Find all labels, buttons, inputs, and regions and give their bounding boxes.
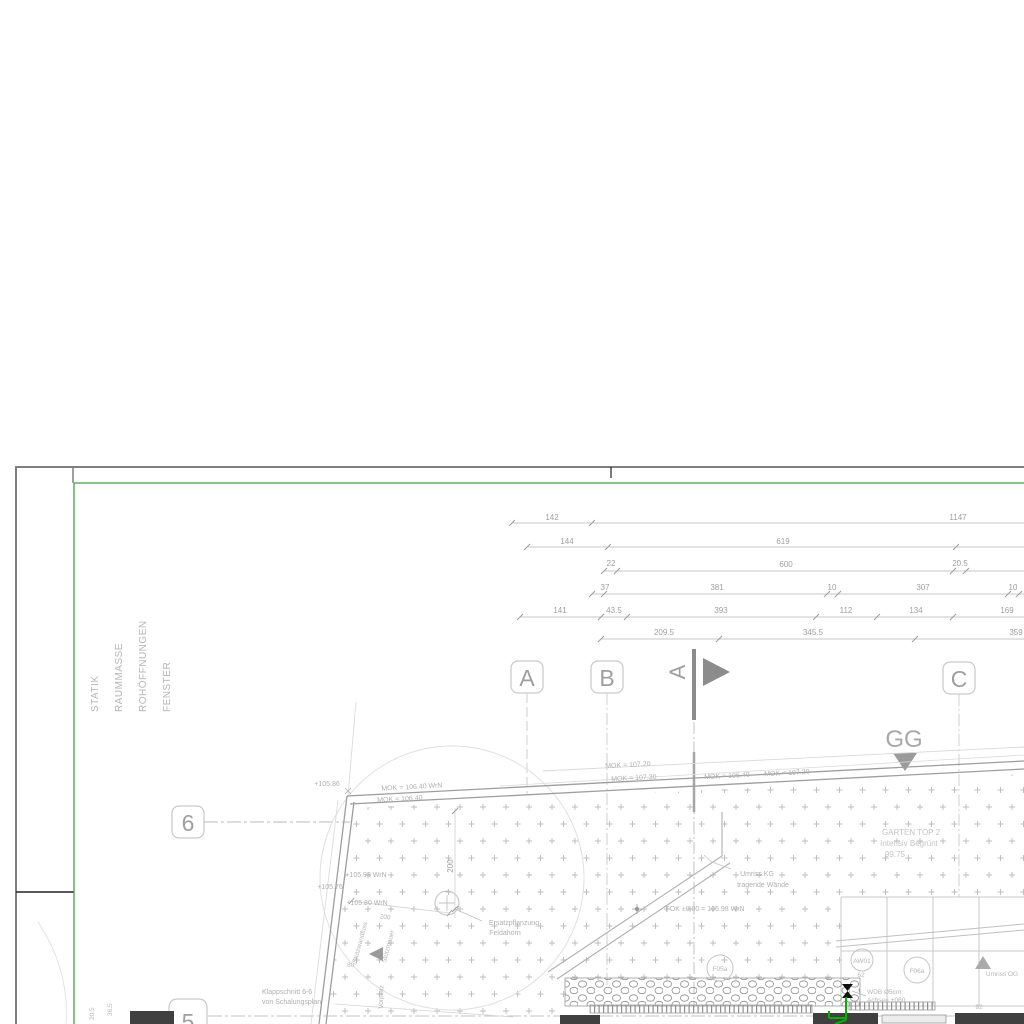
dim-value: 36.5 — [107, 1003, 114, 1016]
cad-drawing-viewport[interactable]: STATIK RAUMMASSE ROHÖFFNUNGEN FENSTER 14… — [0, 0, 1024, 1024]
wall-poche — [130, 1011, 174, 1024]
note-label: WDB Ø5cm — [867, 989, 901, 996]
margin-label-rohoeffnungen: ROHÖFFNUNGEN — [137, 620, 149, 712]
dim-value: 22 — [607, 559, 616, 568]
margin-label-fenster: FENSTER — [162, 662, 173, 712]
room-label: GARTEN TOP 2 — [882, 828, 941, 837]
wall-poche — [955, 1013, 1024, 1024]
dim-value: 345.5 — [803, 628, 824, 637]
level-label: +105.98 WrN — [345, 872, 386, 879]
bubble-aw01: AW01 — [853, 958, 871, 965]
margin-labels: STATIK RAUMMASSE ROHÖFFNUNGEN FENSTER — [90, 620, 173, 712]
dim-value: 141 — [553, 606, 567, 615]
level-label: +105.80 WrN — [346, 900, 387, 907]
margin-label-statik: STATIK — [90, 675, 101, 712]
dim-value: 200 — [379, 913, 391, 921]
umriss-og-triangle-icon — [975, 956, 991, 969]
stripe-band-left — [590, 1005, 812, 1013]
gg-label: GG — [885, 726, 922, 753]
dim-value: 393 — [714, 606, 728, 615]
dim-value: 20.5 — [952, 559, 968, 568]
room-label: Intensiv Begrünt — [880, 839, 939, 848]
bubble-f05a: F05a — [713, 966, 728, 973]
note-label: Achse= +060 — [867, 997, 906, 1004]
dim-value: 1147 — [949, 513, 967, 522]
level-label: +105.86 — [314, 781, 340, 788]
level-label: MOK = 107.20 — [764, 769, 810, 778]
dim-value: 200 — [446, 859, 455, 873]
wall-poche — [560, 1015, 600, 1024]
dim-value: 619 — [776, 537, 790, 546]
level-label: MOK = 106.40 — [704, 772, 750, 781]
grid-letter-a: A — [519, 665, 535, 691]
dim-value: 600 — [779, 560, 793, 569]
dim-value: 359 — [1009, 628, 1023, 637]
section-arrow-icon — [703, 658, 730, 686]
level-label: FOK ±0.00 = 105.98 WrN — [666, 906, 745, 913]
cobble-wall-band — [565, 978, 860, 1006]
dim-value: 37 — [601, 583, 610, 592]
level-label: +105.76 — [317, 884, 343, 891]
dimension-chains: 142 1147 144 619 22 600 20.5 37 381 10 3… — [509, 513, 1024, 642]
level-label: MOK = 107.30 — [611, 774, 657, 783]
dim-value: 144 — [560, 537, 574, 546]
room-area: 99.75 — [885, 850, 906, 859]
note-label: Umriss OG — [986, 971, 1018, 978]
dim-value: 10 — [828, 583, 837, 592]
note-label: Vorplatz — [378, 985, 386, 1009]
note-label: Klappschnitt 6-6 — [262, 989, 312, 996]
grid-number-5: 5 — [182, 1009, 195, 1024]
dim-value: 381 — [710, 583, 724, 592]
dim-value: 92 — [975, 1004, 983, 1011]
dim-value: 112 — [840, 606, 853, 615]
dim-value: 62 — [857, 972, 865, 979]
gg-marker: GG — [885, 726, 922, 771]
dim-value: 43.5 — [606, 606, 622, 615]
note-label: Feldahorn — [489, 930, 521, 937]
margin-label-raummasse: RAUMMASSE — [114, 643, 125, 712]
note-label: Umriss KG — [740, 871, 774, 878]
note-label: tragende Wände — [737, 882, 789, 889]
dim-value: 169 — [1000, 606, 1014, 615]
grid-letter-b: B — [599, 665, 614, 691]
level-label: MOK = 106.40 — [377, 795, 423, 804]
dim-value: 142 — [545, 513, 559, 522]
section-letter: A — [665, 664, 690, 679]
dim-value: 307 — [916, 583, 930, 592]
bubble-f06a: F06a — [910, 968, 925, 975]
dim-value: 134 — [909, 606, 923, 615]
angle-label: 80° — [347, 961, 357, 969]
dim-value: 20.5 — [89, 1007, 96, 1020]
dim-value: 209.5 — [654, 628, 675, 637]
dim-value: 10 — [1009, 583, 1018, 592]
grid-letter-c: C — [951, 666, 968, 692]
note-label: Ersatzpflanzung — [489, 920, 539, 927]
note-label: von Schalungsplan — [262, 999, 321, 1006]
lintel — [882, 1015, 946, 1023]
level-label: MOK = 107.20 — [605, 761, 651, 770]
grid-number-6: 6 — [182, 810, 195, 836]
plan-canvas[interactable]: STATIK RAUMMASSE ROHÖFFNUNGEN FENSTER 14… — [0, 0, 1024, 1024]
